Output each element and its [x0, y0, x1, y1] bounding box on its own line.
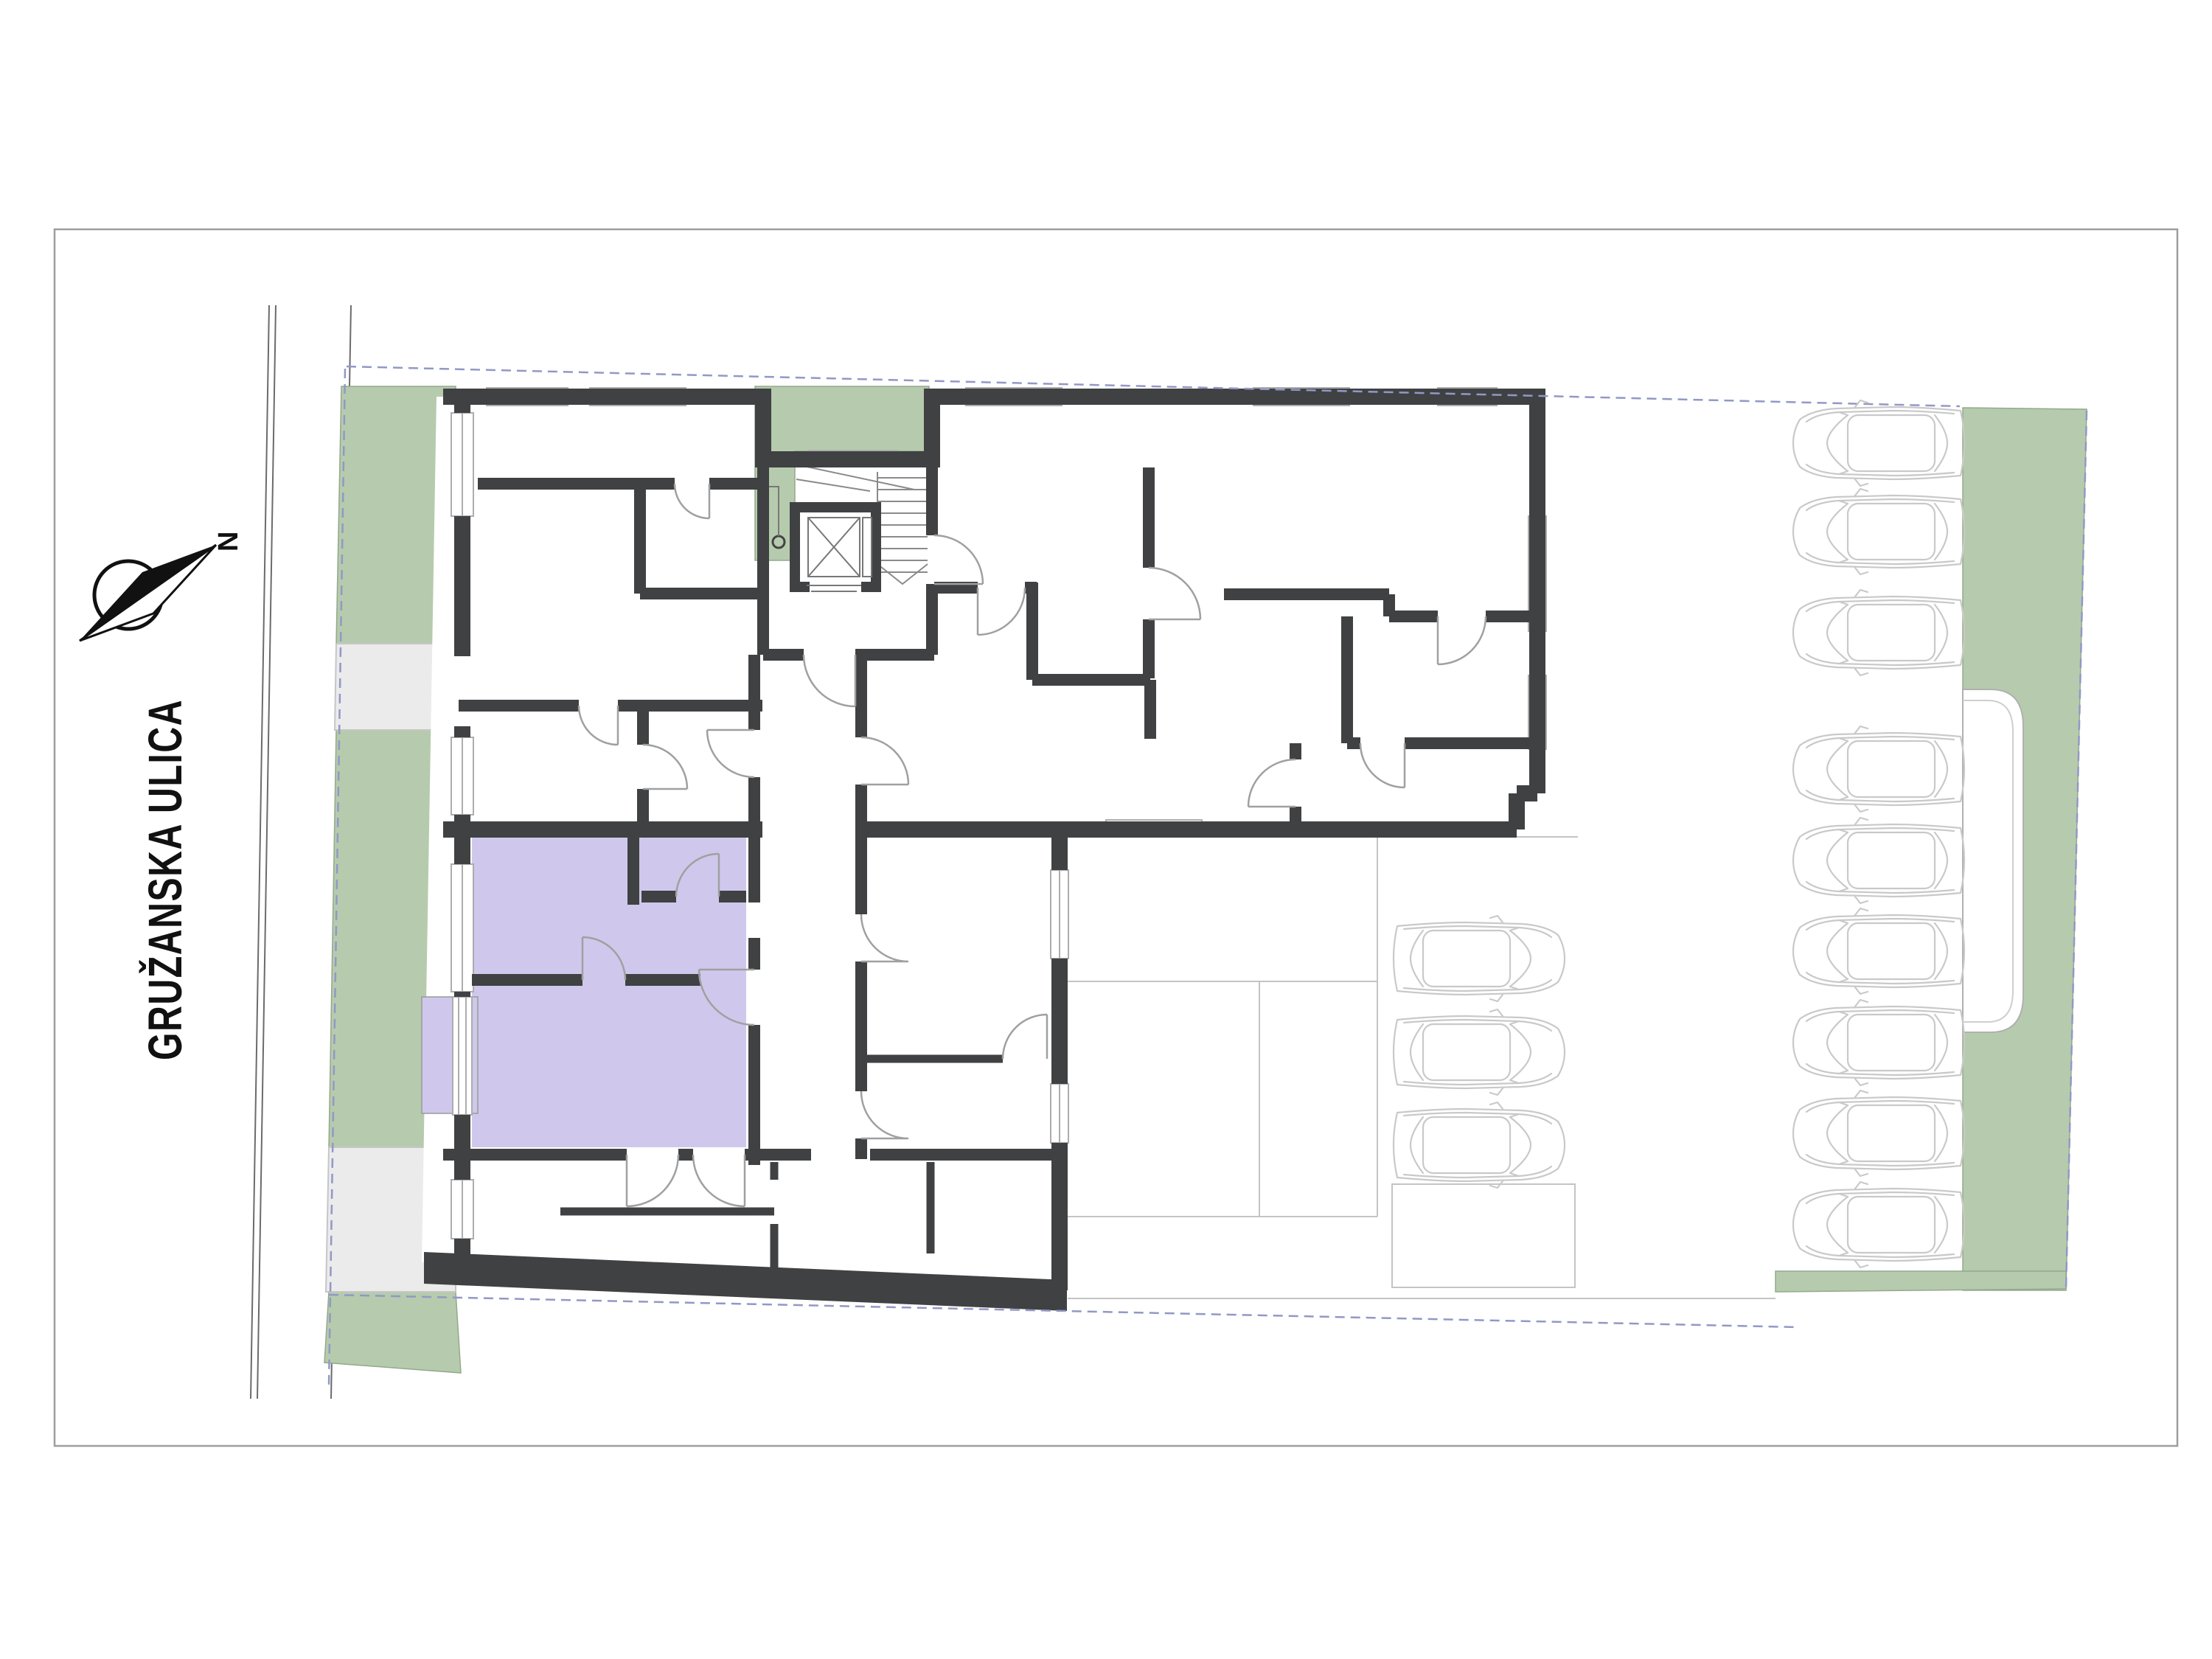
parking-lines — [1068, 834, 1775, 1298]
north-compass-icon: N — [80, 532, 244, 641]
parked-car — [1394, 1009, 1565, 1095]
parked-car — [1793, 818, 1964, 903]
parked-car — [1793, 1182, 1964, 1267]
parked-car — [1793, 726, 1964, 812]
parked-car — [1793, 1000, 1964, 1085]
compass-needle-white — [80, 545, 216, 641]
landscape-strip-left-lower — [324, 1292, 461, 1373]
parked-car — [1793, 1091, 1964, 1176]
highlighted-apartment-area[interactable] — [472, 838, 746, 1147]
parked-car — [1793, 590, 1964, 675]
parked-car — [1793, 908, 1964, 994]
empty-parking-space — [1392, 1184, 1575, 1287]
site-plan-canvas: GRUŽANSKA ULICA N — [0, 0, 2212, 1659]
green-cutout — [1963, 689, 2023, 1032]
parked-car — [1394, 1102, 1565, 1188]
parked-car — [1394, 916, 1565, 1001]
parked-car — [1793, 489, 1964, 574]
street-name-label: GRUŽANSKA ULICA — [138, 699, 192, 1060]
north-label: N — [213, 532, 244, 552]
parked-car — [1793, 400, 1964, 486]
landscape-strip-bottom — [1775, 1271, 2066, 1292]
site-plan-page: GRUŽANSKA ULICA N — [0, 0, 2212, 1659]
